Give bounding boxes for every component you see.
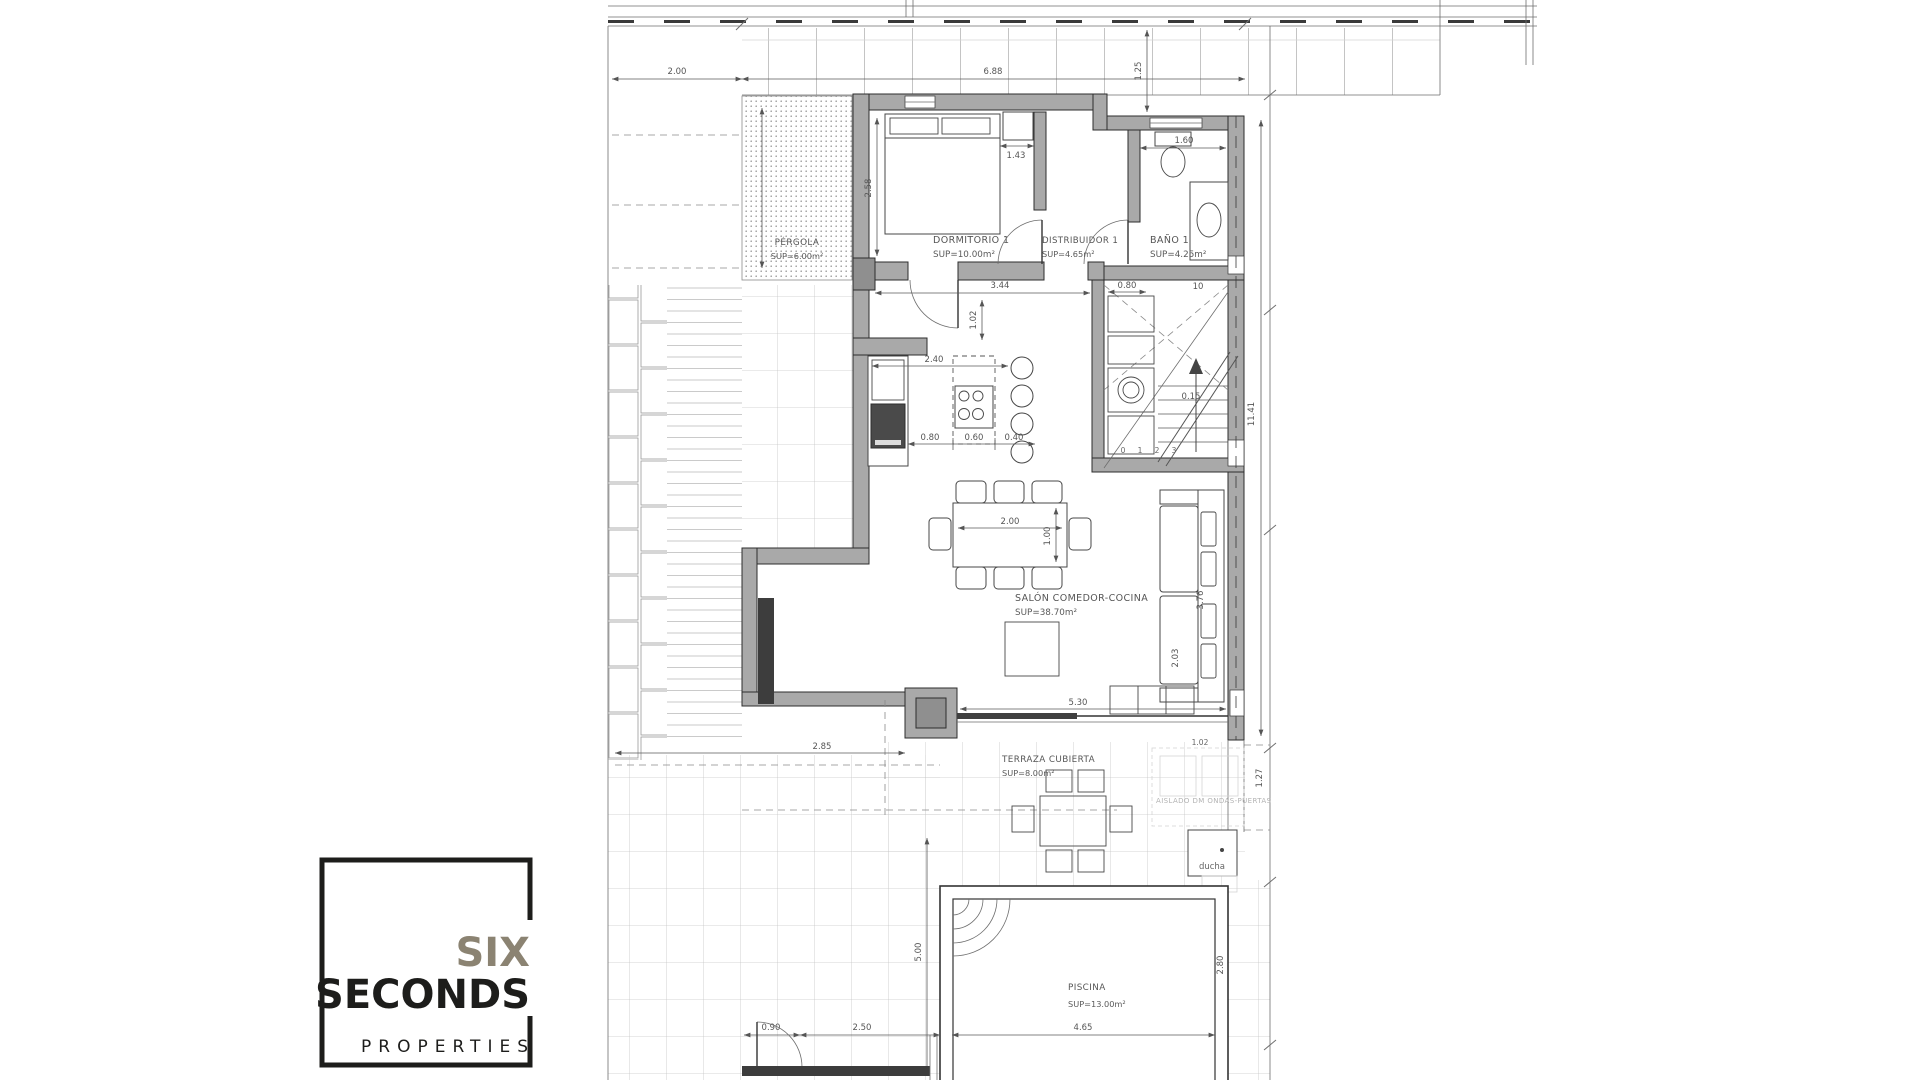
dimension-label: 1.00: [1043, 527, 1053, 546]
dimension-label: 11.41: [1247, 402, 1257, 426]
dimension-label: 5.30: [1069, 698, 1088, 708]
boundary-wall: [742, 1066, 930, 1076]
drain: [1220, 848, 1224, 852]
tv-unit: [758, 598, 774, 704]
door-arc: [910, 280, 958, 328]
room-area: SUP=4.65m²: [1042, 249, 1094, 259]
bedroom-1: 1.43 2.58 DORMITORIO 1 SUP=10.00m²: [864, 112, 1034, 260]
pergola-area: PÉRGOLA SUP=6.00m²: [612, 96, 852, 280]
dimension: 0.80: [1108, 281, 1146, 292]
watermark-text: AISLADO DM ONDAS-PUERTAS: [1156, 797, 1272, 805]
dimension-label: 1.25: [1134, 62, 1144, 81]
dimension-label: 5.00: [914, 943, 924, 962]
stairs: 0.80 10 0.15 0 1 2 3: [1104, 281, 1238, 468]
dimension-label: 0.15: [1182, 392, 1201, 402]
dimension: 2.00: [612, 67, 742, 79]
dimension-label: 2.85: [813, 742, 832, 752]
stove: [955, 386, 993, 428]
sink-vanity: [1190, 182, 1228, 260]
dimension-label: 1.02: [1192, 738, 1209, 747]
room-area: SUP=6.00m²: [771, 251, 823, 261]
dimension-label: 0.80: [1118, 281, 1137, 291]
room-area: SUP=38.70m²: [1015, 608, 1077, 618]
room-label: TERRAZA CUBIERTA: [1001, 755, 1095, 765]
stepping-stone-path: [608, 285, 667, 760]
room-label: DISTRIBUIDOR 1: [1042, 236, 1118, 246]
svg-text:2: 2: [1155, 446, 1160, 455]
logo-word-six: SIX: [455, 930, 530, 976]
room-label: BAÑO 1: [1150, 235, 1189, 246]
nightstand: [1003, 112, 1033, 140]
room-area: SUP=10.00m²: [933, 250, 995, 260]
dimension-label: 2.80: [1216, 956, 1226, 975]
dimension-label: 1.60: [1175, 136, 1194, 146]
room-label: PISCINA: [1068, 983, 1106, 993]
dimension-label: 1.02: [969, 311, 979, 330]
room-label: ducha: [1199, 862, 1225, 872]
dimension-label: 0.80: [921, 433, 940, 443]
room-label: SALÓN COMEDOR-COCINA: [1015, 592, 1148, 604]
logo-word-properties: PROPERTIES: [361, 1037, 535, 1057]
room-area: SUP=13.00m²: [1068, 999, 1126, 1009]
dimension-label: 1.27: [1255, 769, 1265, 788]
coffee-table: [1005, 622, 1059, 676]
dimension-label: 0.40: [1005, 433, 1024, 443]
dimension: 11.41: [1247, 120, 1261, 736]
bar-stools: [1011, 357, 1033, 463]
window: [1230, 690, 1244, 716]
sofa: [1160, 490, 1224, 702]
kitchen: 2.40 0.80 0.60 0.40 3.44 1.02: [868, 280, 1090, 466]
hallway: DISTRIBUIDOR 1 SUP=4.65m²: [998, 220, 1128, 264]
dimension: 1.43: [1000, 146, 1034, 161]
dimension: 3.44: [875, 281, 1090, 293]
room-label: DORMITORIO 1: [933, 235, 1009, 246]
dimension-label: 1.43: [1007, 151, 1026, 161]
direction-arrow: [1189, 358, 1203, 374]
room-area: SUP=8.00m²: [1002, 768, 1054, 778]
washing-machine: [1118, 377, 1144, 403]
dimension-label: 4.65: [1074, 1023, 1093, 1033]
bed: [885, 114, 1000, 234]
logo-word-seconds: SECONDS: [315, 972, 530, 1018]
dimension-label: 2.50: [853, 1023, 872, 1033]
dimension-label: 2.58: [864, 179, 874, 198]
dimension-label: 3.44: [991, 281, 1010, 291]
dimension-label: 6.88: [984, 67, 1003, 77]
dimension-label: 2.00: [1001, 517, 1020, 527]
logo: SIX SECONDS PROPERTIES: [315, 860, 558, 1065]
floor-plan: 2.00 6.88 1.25 11.41 PÉRGOLA SUP=6.00m²: [0, 0, 1920, 1080]
dimension-label: 3.76: [1196, 591, 1206, 610]
bathroom-1: 1.60 BAÑO 1 SUP=4.25m²: [1140, 132, 1228, 260]
dimension-label: 2.03: [1171, 649, 1181, 668]
dimension-label: 0.60: [965, 433, 984, 443]
stair-count: 10: [1193, 282, 1204, 292]
sliding-door-panel: [957, 713, 1077, 719]
room-label: PÉRGOLA: [775, 236, 820, 248]
dimension-label: 2.00: [668, 67, 687, 77]
room-area: SUP=4.25m²: [1150, 250, 1206, 260]
dimension-label: 2.40: [925, 355, 944, 365]
svg-text:3: 3: [1172, 446, 1177, 455]
dimension: 1.02: [969, 300, 982, 340]
dining-table: [929, 481, 1091, 589]
